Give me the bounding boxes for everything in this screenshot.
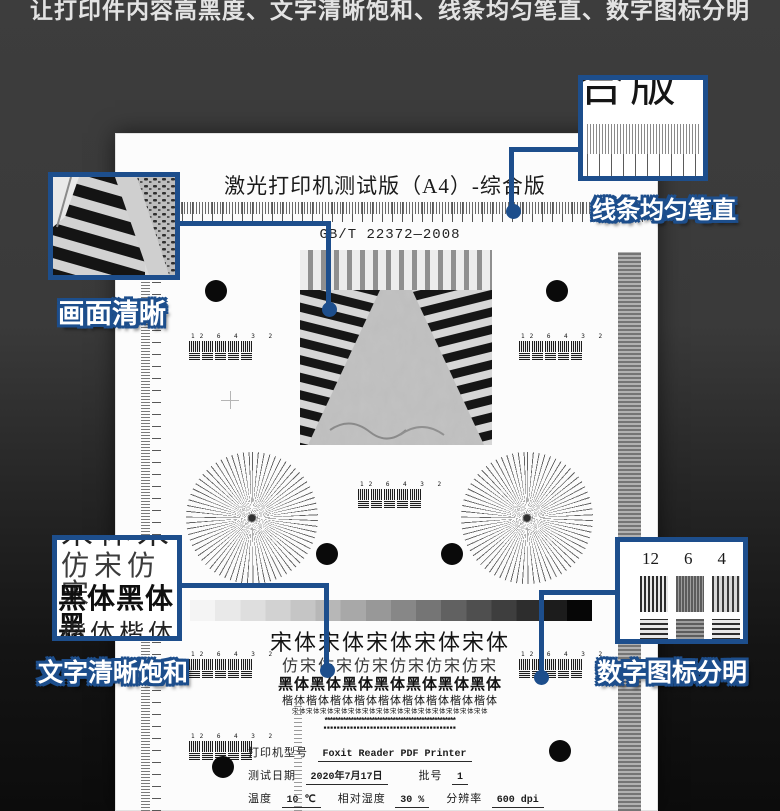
fangsong-sample: 仿宋仿宋仿宋仿宋仿宋仿宋: [230, 658, 550, 674]
connector-line: [509, 147, 514, 207]
starburst-pattern: [461, 452, 593, 584]
blocks-row: ■■■■■■■■■■■■■■■■■■■■■■■■■■■■■■■■■■■■■■■■: [230, 726, 550, 731]
text-zoom-box: 宋体宋 仿宋仿宋 黑体黑体黑 楷体楷体楷: [52, 535, 182, 641]
right-density-bar: [618, 252, 641, 811]
zoomed-song-fragment: 宋体宋: [61, 535, 175, 548]
printer-value: Foxit Reader PDF Printer: [318, 749, 472, 762]
grayscale-gradient-bar: [190, 600, 592, 621]
picture-callout-label: 画面清晰: [58, 292, 166, 331]
stars-row: ****************************************…: [230, 717, 550, 725]
zoomed-resolution-numbers: 12 6 4: [642, 549, 726, 569]
resolution-pattern: 12 6 4 3 2: [189, 333, 253, 360]
numbers-zoom-box: 12 6 4: [615, 537, 748, 644]
humidity-label: 相对湿度: [338, 792, 386, 805]
resolution-pattern: 12 6 4 3 2: [358, 481, 422, 508]
lines-callout-label: 线条均匀笔直: [592, 190, 736, 225]
resolution-pattern: 12 6 4 3 2: [519, 333, 583, 360]
batch-label: 批号: [419, 769, 443, 782]
standard-number: GB/T 22372—2008: [235, 227, 545, 243]
picture-zoom-box: [48, 172, 180, 280]
page-title: 激光打印机测试版（A4）-综合版: [135, 170, 635, 200]
connector-line: [324, 583, 329, 666]
dpi-value: 600 dpi: [492, 795, 544, 808]
date-label: 测试日期: [248, 769, 296, 782]
batch-value: 1: [452, 772, 468, 785]
zoomed-stairs-image: [53, 177, 175, 275]
density-dot: [205, 280, 227, 302]
density-dot: [212, 756, 234, 778]
promo-image: 让打印件内容高黑度、文字清晰饱和、线条均匀笔直、数字图标分明 激光打印机测试版（…: [0, 0, 780, 811]
dpi-label: 分辨率: [446, 792, 482, 805]
temp-label: 温度: [248, 792, 272, 805]
connector-line: [539, 590, 615, 595]
zoomed-ruler-ticks: [587, 124, 699, 181]
banner-headline: 让打印件内容高黑度、文字清晰饱和、线条均匀笔直、数字图标分明: [0, 0, 780, 25]
humidity-value: 30 %: [395, 795, 429, 808]
density-dot: [316, 543, 338, 565]
numbers-callout-label: 数字图标分明: [597, 653, 747, 689]
lines-zoom-box: 合版: [578, 75, 708, 181]
registration-cross: [221, 391, 239, 409]
zoomed-bar-patterns: [640, 576, 748, 644]
connector-line: [509, 147, 578, 152]
font-sample-block: 宋体宋体宋体宋体宋体 仿宋仿宋仿宋仿宋仿宋仿宋 黑体黑体黑体黑体黑体黑体黑体 楷…: [230, 632, 550, 730]
connector-line: [326, 221, 331, 305]
connector-line: [180, 583, 329, 588]
date-value: 2020年7月17日: [306, 772, 388, 785]
connector-dot: [506, 204, 521, 219]
kai-sample: 楷体楷体楷体楷体楷体楷体楷体楷体楷体: [230, 695, 550, 706]
zoomed-kai-fragment: 楷体楷体楷: [61, 621, 177, 641]
song-sample: 宋体宋体宋体宋体宋体: [230, 632, 550, 654]
connector-dot: [534, 670, 549, 685]
hei-sample: 黑体黑体黑体黑体黑体黑体黑体: [230, 677, 550, 692]
zoomed-title-fragment: 合版: [578, 75, 682, 109]
connector-dot: [322, 302, 337, 317]
density-dot: [549, 740, 571, 762]
connector-line: [539, 590, 544, 674]
density-dot: [546, 280, 568, 302]
starburst-pattern: [186, 452, 318, 584]
connector-dot: [320, 663, 335, 678]
connector-line: [178, 221, 330, 226]
tiny-sample: 宋体宋体宋体宋体宋体宋体宋体宋体宋体宋体宋体宋体宋体宋体: [230, 708, 550, 715]
density-dot: [441, 543, 463, 565]
text-callout-label: 文字清晰饱和: [38, 653, 188, 689]
micro-tick-column: [294, 700, 306, 811]
